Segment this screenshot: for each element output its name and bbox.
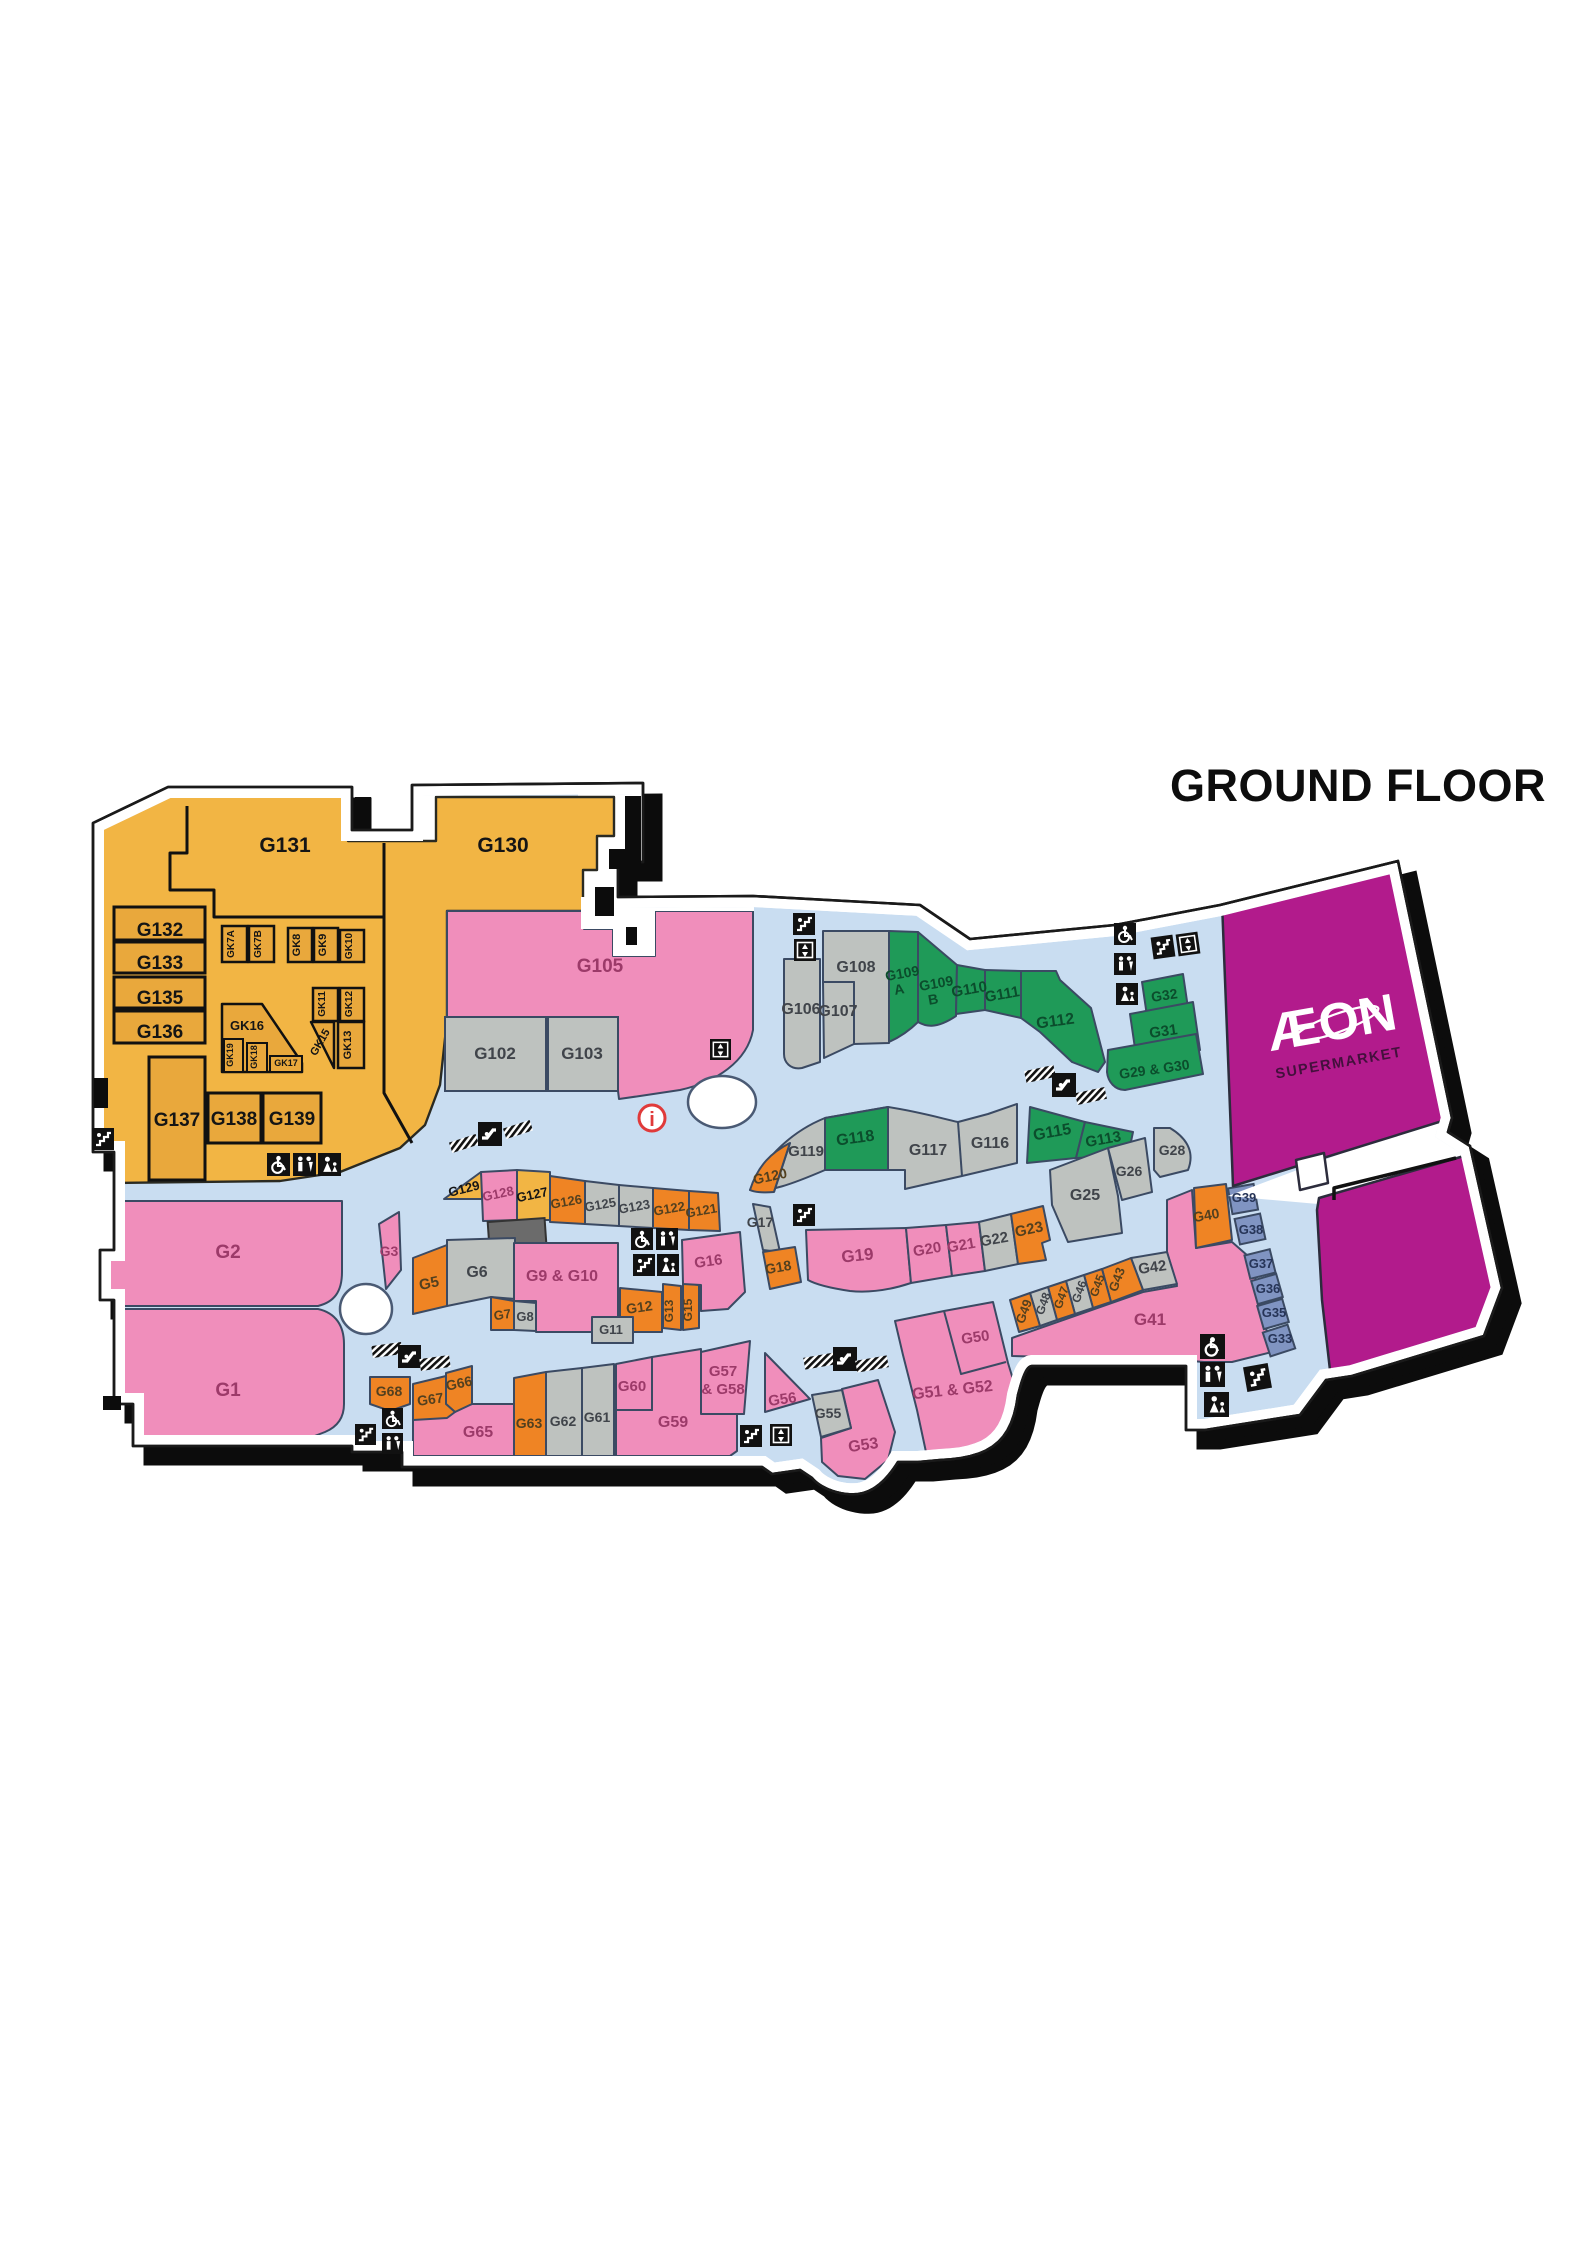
svg-text:G65: G65 xyxy=(463,1424,493,1441)
svg-text:G57: G57 xyxy=(709,1363,737,1380)
svg-text:G62: G62 xyxy=(550,1413,577,1429)
svg-text:G39: G39 xyxy=(1232,1190,1257,1205)
svg-text:GK12: GK12 xyxy=(344,991,355,1018)
svg-text:G19: G19 xyxy=(840,1244,874,1266)
svg-text:G60: G60 xyxy=(618,1378,646,1395)
svg-text:GK19: GK19 xyxy=(225,1043,235,1067)
svg-text:G8: G8 xyxy=(516,1309,533,1324)
svg-text:GK17: GK17 xyxy=(274,1058,298,1068)
svg-text:G11: G11 xyxy=(599,1322,623,1337)
svg-text:G7: G7 xyxy=(493,1306,512,1323)
svg-text:GK10: GK10 xyxy=(344,933,355,960)
svg-text:G9 & G10: G9 & G10 xyxy=(526,1268,598,1285)
svg-text:G137: G137 xyxy=(154,1110,200,1131)
svg-text:G130: G130 xyxy=(477,834,528,857)
svg-text:GK8: GK8 xyxy=(291,934,303,957)
svg-text:G68: G68 xyxy=(376,1383,403,1399)
svg-text:GK18: GK18 xyxy=(249,1045,259,1069)
svg-text:G3: G3 xyxy=(380,1243,399,1259)
svg-text:G108: G108 xyxy=(836,959,875,976)
svg-text:G55: G55 xyxy=(815,1405,842,1421)
svg-text:G6: G6 xyxy=(466,1264,487,1281)
svg-text:G119: G119 xyxy=(788,1143,824,1160)
svg-text:G37: G37 xyxy=(1249,1256,1274,1271)
svg-text:G63: G63 xyxy=(516,1415,543,1431)
svg-text:G41: G41 xyxy=(1134,1310,1166,1329)
svg-text:G133: G133 xyxy=(137,953,183,974)
svg-text:G105: G105 xyxy=(577,956,624,977)
svg-text:G2: G2 xyxy=(215,1242,240,1263)
svg-text:GK16: GK16 xyxy=(230,1018,264,1033)
svg-text:G102: G102 xyxy=(474,1044,516,1063)
svg-text:G106: G106 xyxy=(781,1001,820,1018)
svg-text:G15: G15 xyxy=(681,1298,695,1321)
svg-text:GK7B: GK7B xyxy=(253,930,264,958)
svg-text:G36: G36 xyxy=(1256,1281,1281,1296)
svg-text:G33: G33 xyxy=(1268,1331,1293,1346)
svg-text:G1: G1 xyxy=(215,1380,241,1401)
svg-text:GK9: GK9 xyxy=(317,934,329,957)
svg-text:GK7A: GK7A xyxy=(226,930,237,958)
svg-text:G25: G25 xyxy=(1070,1187,1100,1204)
svg-text:G28: G28 xyxy=(1159,1142,1186,1158)
svg-text:i: i xyxy=(649,1109,655,1131)
svg-text:G103: G103 xyxy=(561,1044,603,1063)
svg-text:G135: G135 xyxy=(137,988,184,1009)
svg-text:G26: G26 xyxy=(1116,1163,1143,1179)
svg-text:G117: G117 xyxy=(909,1142,947,1159)
svg-text:G107: G107 xyxy=(818,1003,857,1020)
svg-text:G38: G38 xyxy=(1239,1222,1264,1237)
svg-text:G59: G59 xyxy=(658,1414,688,1431)
svg-text:G131: G131 xyxy=(259,834,311,857)
svg-text:G61: G61 xyxy=(584,1409,611,1425)
svg-text:GK13: GK13 xyxy=(342,1031,354,1060)
svg-text:G13: G13 xyxy=(662,1299,676,1322)
svg-text:GROUND FLOOR: GROUND FLOOR xyxy=(1170,760,1546,811)
svg-text:G35: G35 xyxy=(1262,1305,1287,1320)
svg-text:GK11: GK11 xyxy=(317,991,328,1017)
svg-text:& G58: & G58 xyxy=(701,1381,744,1398)
svg-text:G116: G116 xyxy=(971,1135,1009,1152)
svg-text:G17: G17 xyxy=(747,1214,774,1230)
svg-text:G139: G139 xyxy=(269,1109,315,1130)
svg-text:G136: G136 xyxy=(137,1022,183,1043)
svg-text:G138: G138 xyxy=(211,1109,257,1130)
svg-text:G132: G132 xyxy=(137,920,183,941)
